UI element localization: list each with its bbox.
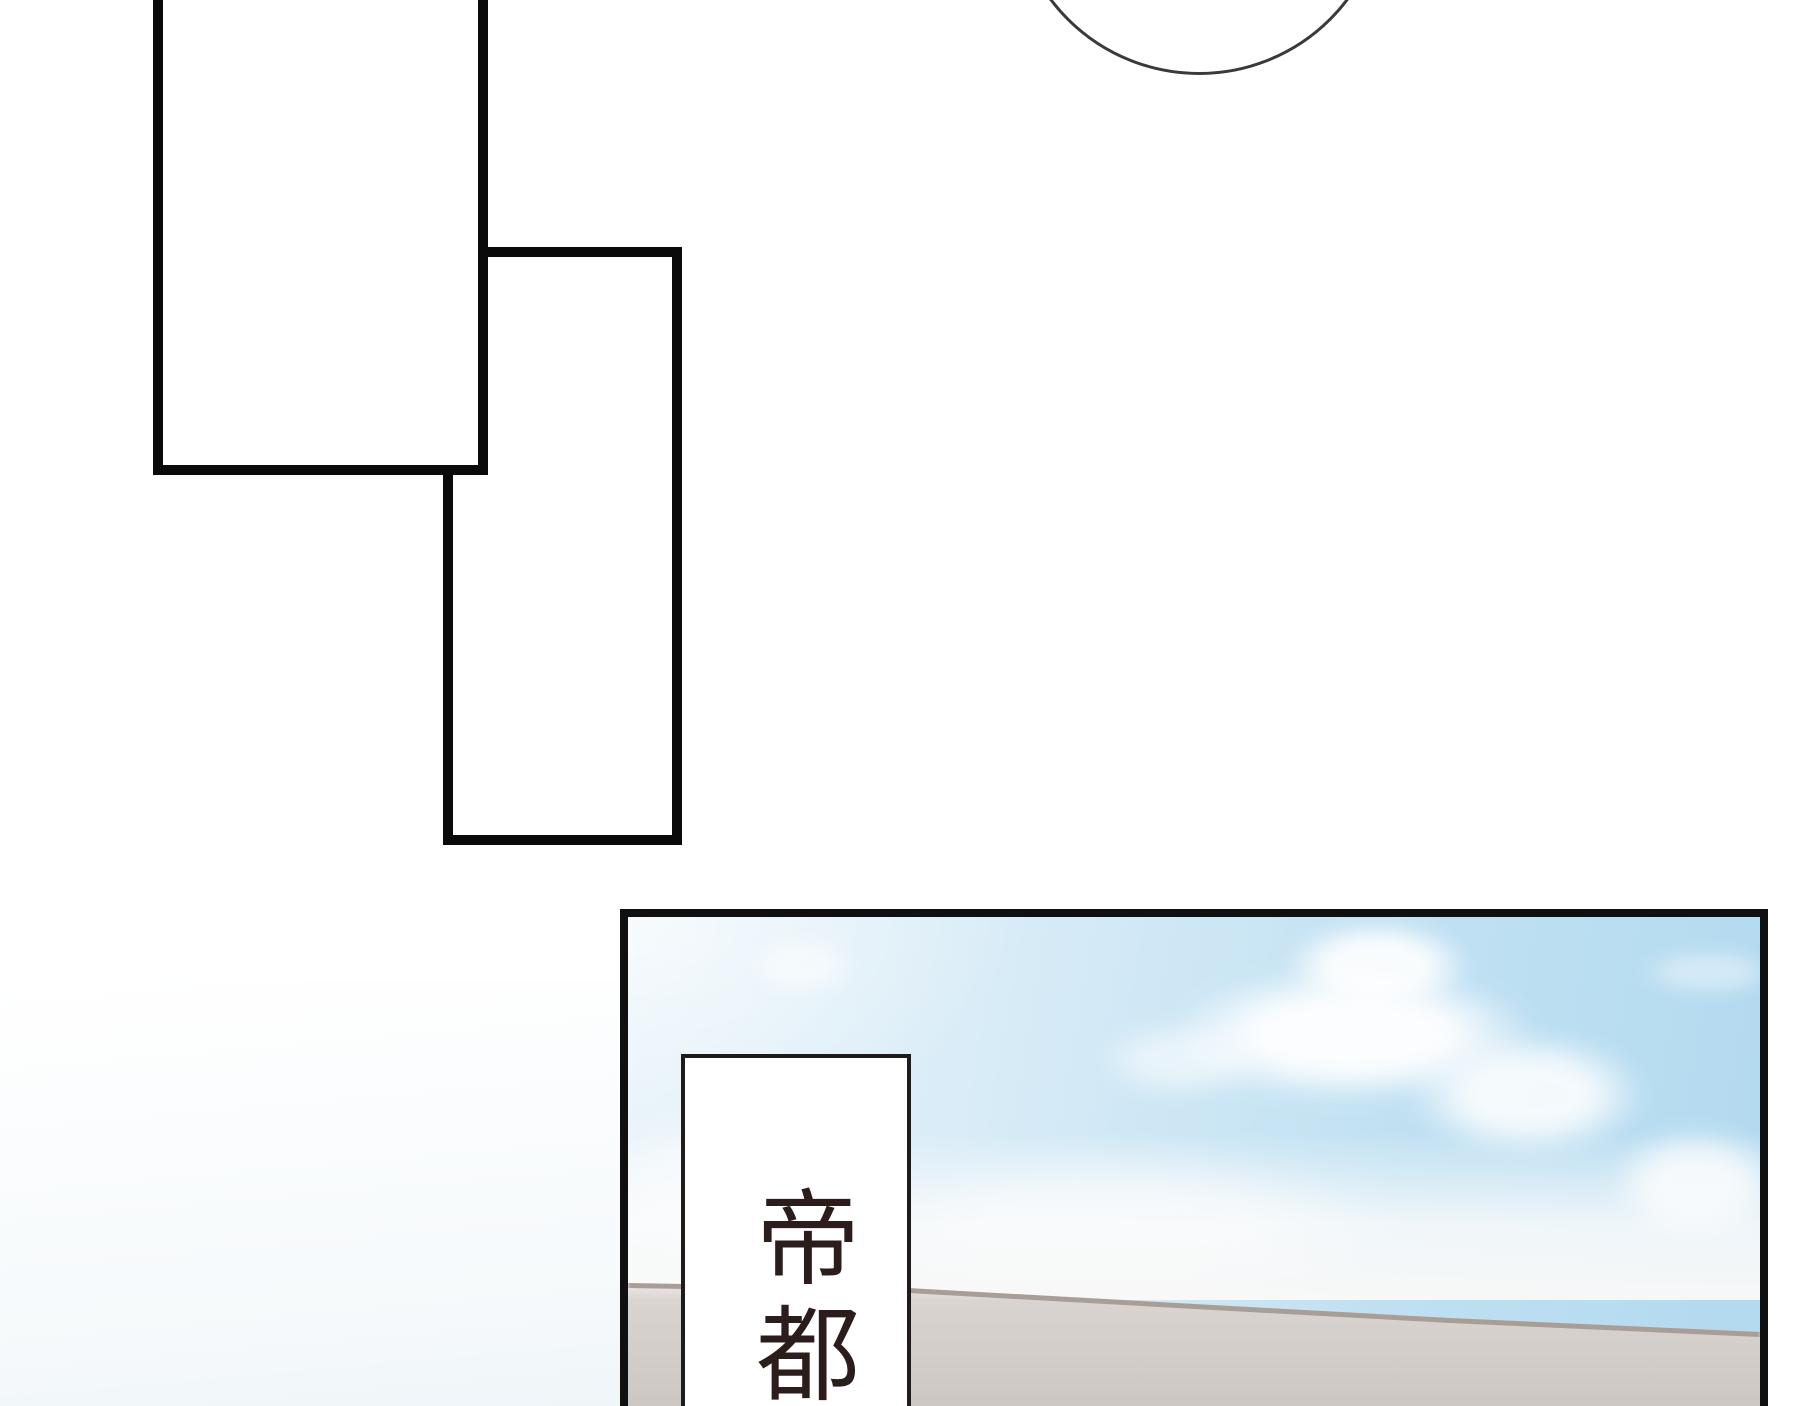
cloud [1638, 947, 1768, 997]
speech-bubble-circle-partial [1012, 0, 1386, 75]
comic-page: 帝都 [0, 0, 1800, 1406]
caption-text: 帝都 [741, 1058, 850, 1406]
cloud [748, 935, 858, 997]
scene-panel: 帝都 [620, 909, 1768, 1406]
empty-panel-frame-1 [153, 0, 488, 475]
caption-box: 帝都 [681, 1054, 911, 1406]
cloud [1098, 1022, 1268, 1097]
cloud [1283, 919, 1473, 1014]
page-shading [0, 980, 640, 1406]
